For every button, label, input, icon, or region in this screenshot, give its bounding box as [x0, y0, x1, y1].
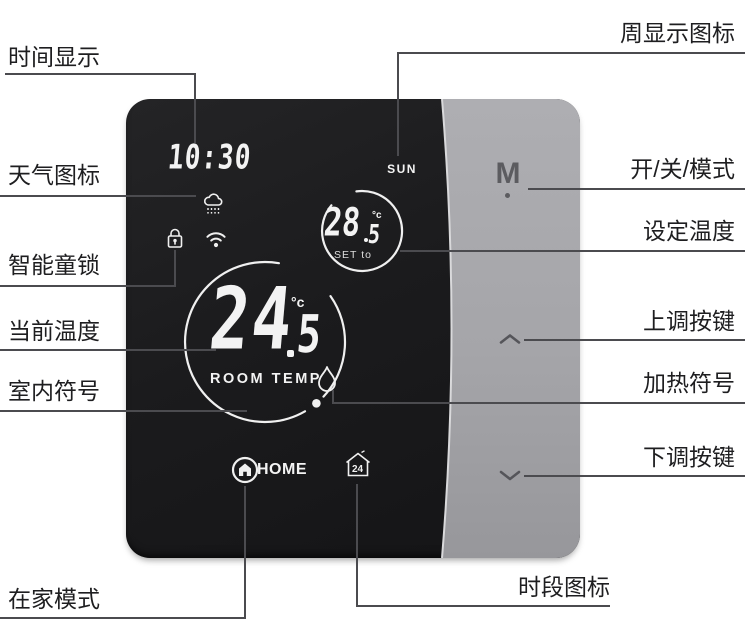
- label-power-mode: 开/关/模式: [630, 156, 735, 184]
- label-set-temp: 设定温度: [643, 218, 735, 246]
- room-temp-label: ROOM TEMP: [200, 371, 332, 387]
- label-home-mode: 在家模式: [8, 586, 100, 614]
- mode-button-dot: [505, 193, 510, 198]
- down-button[interactable]: [498, 468, 522, 483]
- label-down-key: 下调按键: [643, 444, 735, 472]
- period-icon: 24: [344, 449, 372, 482]
- thermostat-device: M 10:30 SUN: [126, 99, 580, 558]
- label-period-icon: 时段图标: [518, 574, 610, 602]
- room-temp-decimal-point: [287, 350, 294, 357]
- label-heating-symbol: 加热符号: [643, 370, 735, 398]
- room-temp-unit: °c: [291, 294, 304, 310]
- ring-end-dot: [312, 399, 321, 408]
- diagram-canvas: M 10:30 SUN: [0, 0, 750, 626]
- home-label: HOME: [257, 461, 307, 479]
- flame-icon: [315, 365, 339, 393]
- chevron-up-icon: [501, 336, 519, 343]
- room-temp-decimal: 5: [295, 309, 324, 361]
- period-icon-text: 24: [352, 464, 364, 475]
- time-display: 10:30: [167, 141, 253, 175]
- set-temp-unit: °c: [372, 210, 382, 221]
- home-mode-icon[interactable]: [231, 456, 259, 484]
- label-time-display: 时间显示: [8, 44, 100, 72]
- label-current-temp: 当前温度: [8, 318, 100, 346]
- week-day-display: SUN: [384, 162, 420, 176]
- mode-button[interactable]: M: [492, 159, 524, 189]
- label-week-display: 周显示图标: [620, 20, 735, 48]
- label-weather-icon: 天气图标: [8, 162, 100, 190]
- label-indoor-symbol: 室内符号: [8, 378, 100, 406]
- weather-rain-cloud-icon: [201, 192, 225, 214]
- set-temp-decimal: 5: [367, 221, 381, 247]
- chevron-down-icon: [501, 472, 519, 479]
- room-temp-value: 24: [206, 277, 297, 363]
- up-button[interactable]: [498, 331, 522, 346]
- house-icon: [239, 464, 251, 477]
- label-child-lock: 智能童锁: [8, 252, 100, 280]
- label-up-key: 上调按键: [643, 308, 735, 336]
- child-lock-icon: [166, 226, 184, 249]
- set-temp-value: 28: [322, 205, 362, 244]
- wifi-icon: [203, 228, 229, 248]
